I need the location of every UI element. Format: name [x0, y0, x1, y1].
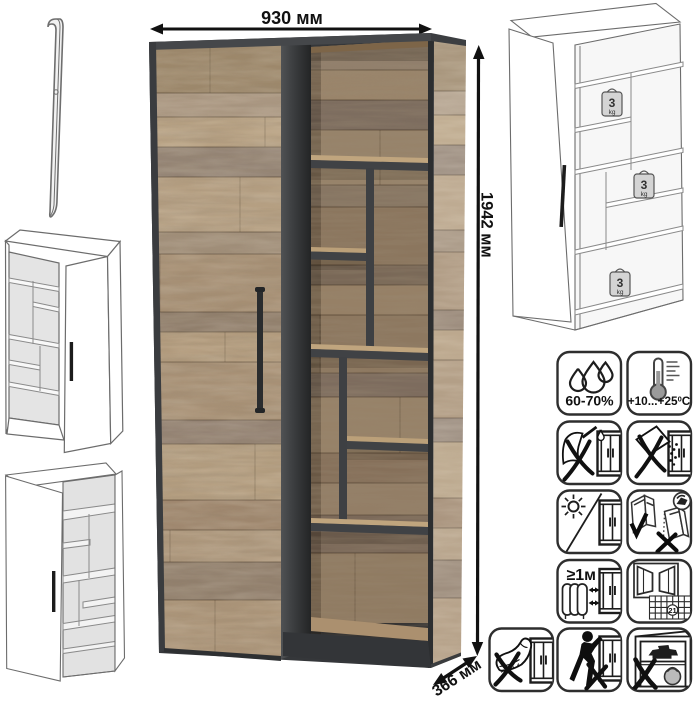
svg-text:kg: kg [641, 191, 648, 198]
svg-text:3: 3 [617, 276, 624, 290]
svg-text:≥1м: ≥1м [567, 567, 597, 584]
svg-text:kg: kg [609, 109, 616, 116]
svg-text:+10...+250C: +10...+250C [628, 394, 691, 408]
svg-text:3: 3 [641, 178, 648, 192]
svg-text:21: 21 [668, 606, 676, 615]
svg-text:3: 3 [609, 96, 616, 110]
svg-text:60-70%: 60-70% [565, 393, 614, 409]
svg-text:kg: kg [617, 289, 624, 296]
svg-text:930 мм: 930 мм [261, 8, 323, 28]
svg-text:1942 мм: 1942 мм [478, 192, 496, 258]
